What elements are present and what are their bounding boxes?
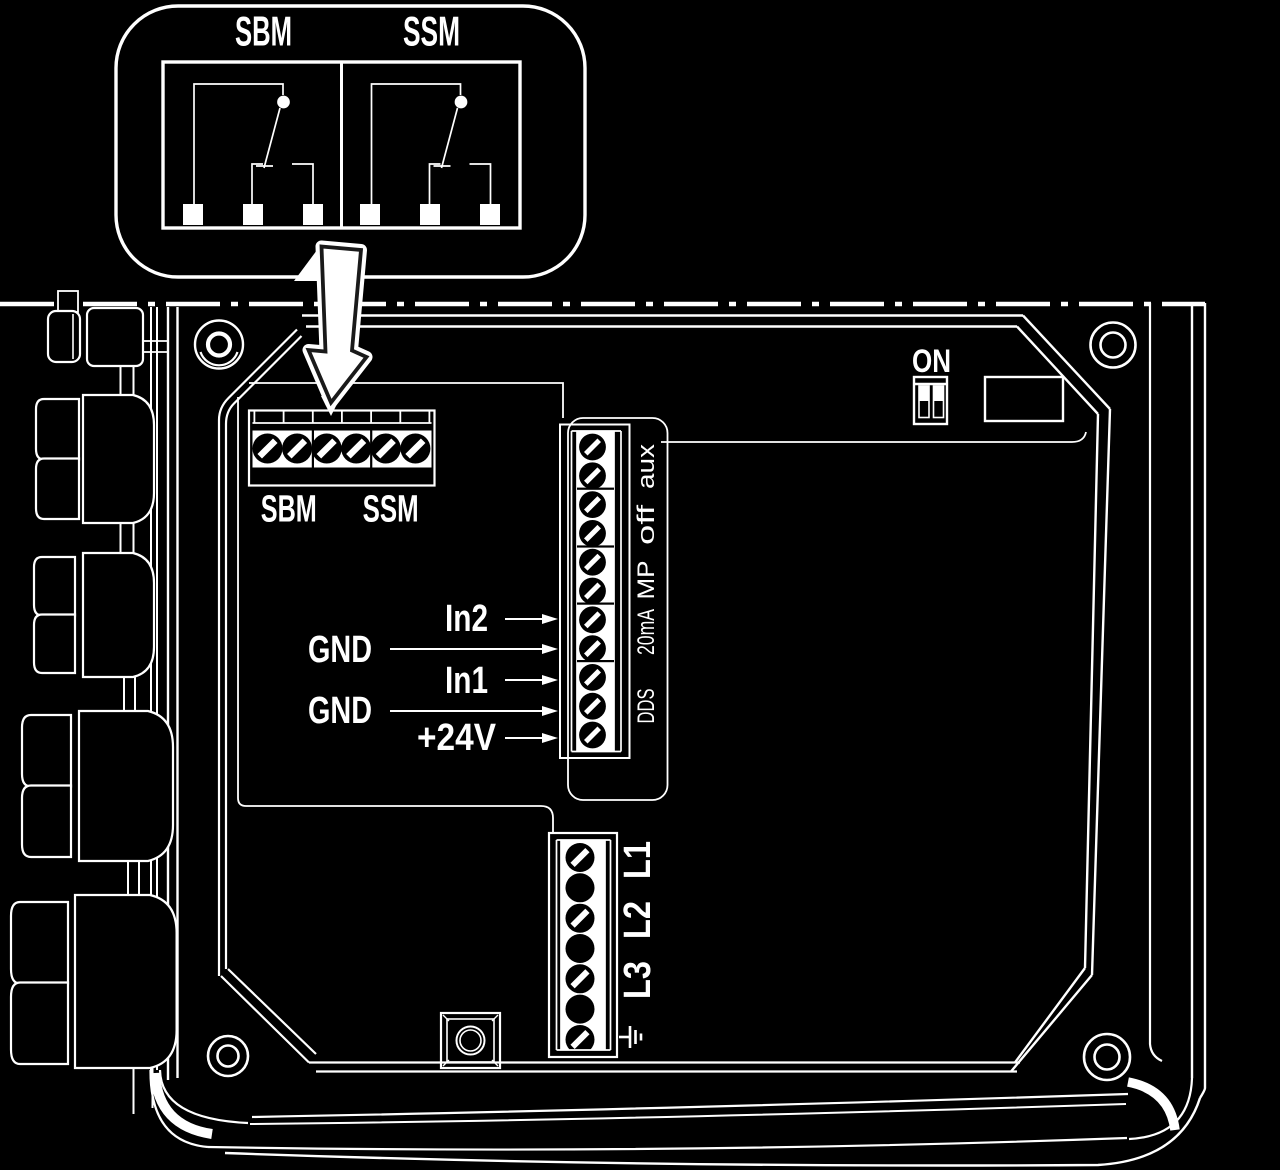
svg-text:GND: GND bbox=[308, 629, 372, 671]
svg-text:SSM: SSM bbox=[363, 489, 419, 531]
svg-text:L1: L1 bbox=[617, 841, 659, 879]
svg-text:In1: In1 bbox=[445, 660, 488, 702]
svg-text:SBM: SBM bbox=[261, 489, 317, 531]
svg-text:20mA: 20mA bbox=[633, 609, 660, 655]
svg-text:GND: GND bbox=[308, 690, 372, 732]
svg-text:aux: aux bbox=[633, 444, 660, 489]
svg-text:L2: L2 bbox=[617, 901, 659, 939]
svg-text:MP: MP bbox=[633, 561, 660, 600]
svg-text:In2: In2 bbox=[445, 598, 488, 640]
svg-text:off: off bbox=[633, 504, 660, 545]
svg-text:SBM: SBM bbox=[235, 8, 292, 55]
svg-text:SSM: SSM bbox=[403, 8, 460, 55]
svg-text:DDS: DDS bbox=[633, 689, 660, 724]
svg-text:+24V: +24V bbox=[417, 717, 497, 759]
svg-text:ON: ON bbox=[912, 343, 951, 379]
svg-text:L3: L3 bbox=[617, 961, 659, 999]
